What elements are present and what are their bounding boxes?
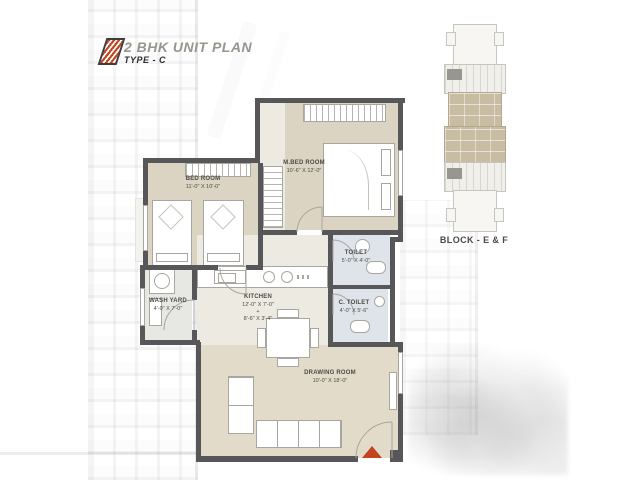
- wall: [258, 163, 263, 270]
- room-name: BED ROOM: [186, 176, 221, 184]
- dining-chair-icon: [277, 309, 299, 318]
- washing-machine-drum: [154, 273, 170, 289]
- floor-plan-page: 2 BHK UNIT PLAN TYPE - C BLOCK - E & F: [0, 0, 640, 480]
- key-plan-highlight-unit-1: [448, 92, 502, 128]
- room-dims-plus: +: [242, 309, 274, 316]
- room-dims: 5'-0" X 4'-0": [342, 258, 371, 265]
- room-name: DRAWING ROOM: [304, 370, 356, 378]
- key-plan-stair-lower: [447, 168, 462, 179]
- window-icon: [398, 150, 403, 196]
- armchair-icon: [228, 376, 254, 434]
- room-label-c-toilet: C. TOILET 4'-0" X 5'-6": [339, 300, 370, 315]
- room-label-toilet: TOILET 5'-0" X 4'-0": [342, 250, 371, 265]
- wall: [255, 98, 260, 163]
- window-icon: [143, 205, 148, 251]
- wall: [322, 230, 403, 235]
- hob-burner-icon: [281, 271, 293, 283]
- room-dims-2: 8'-6" X 3'-4": [242, 316, 274, 323]
- tv-unit-icon: [389, 372, 397, 410]
- wall: [196, 456, 358, 462]
- wall: [390, 237, 395, 347]
- window-icon: [140, 288, 145, 326]
- dining-chair-icon: [277, 358, 299, 367]
- hob-knobs: [297, 275, 311, 279]
- room-label-drawing-room: DRAWING ROOM 10'-0" X 18'-0": [304, 370, 356, 385]
- room-name: C. TOILET: [339, 300, 370, 308]
- wall: [333, 285, 390, 289]
- dining-chair-icon: [257, 328, 266, 348]
- sofa-icon: [256, 420, 342, 448]
- room-dims: 4'-0" X 5'-6": [339, 308, 370, 315]
- hob-burner-icon: [263, 271, 275, 283]
- wall: [390, 450, 403, 462]
- wall: [260, 230, 297, 235]
- window-icon: [398, 352, 403, 394]
- room-dims: 11'-0" X 10'-0": [186, 184, 221, 191]
- background-trees: [408, 345, 568, 475]
- entrance-arrow-icon: [362, 446, 382, 458]
- wall: [192, 330, 197, 345]
- room-label-kitchen: KITCHEN 12'-0" X 7'-0" + 8'-6" X 3'-4": [242, 294, 274, 323]
- dining-table-icon: [266, 318, 310, 358]
- key-plan: BLOCK - E & F: [436, 22, 512, 237]
- wall: [328, 342, 403, 347]
- pillow-icon: [381, 183, 391, 210]
- page-subtitle: TYPE - C: [124, 55, 166, 65]
- wc-icon: [350, 320, 370, 333]
- key-plan-top-block: [453, 24, 497, 66]
- wall: [192, 265, 197, 300]
- background-ground-line: [0, 452, 200, 455]
- room-label-wash-yard: WASH YARD 4'-0" X 7'-0": [149, 298, 187, 313]
- key-plan-top-tab-left: [446, 32, 456, 46]
- room-dims: 4'-0" X 7'-0": [149, 306, 187, 313]
- wall: [140, 340, 200, 345]
- room-dims: 12'-0" X 7'-0": [242, 302, 274, 309]
- wardrobe-icon: [185, 163, 251, 177]
- room-name: TOILET: [342, 250, 371, 258]
- sink-basin: [218, 273, 236, 283]
- wardrobe-column-icon: [263, 166, 283, 228]
- room-dims: 10'-6" X 12'-0": [283, 168, 325, 175]
- room-name: WASH YARD: [149, 298, 187, 306]
- dining-chair-icon: [310, 328, 319, 348]
- room-dims: 10'-0" X 18'-0": [304, 378, 356, 385]
- key-plan-highlight-unit-2: [444, 126, 506, 164]
- pillow-icon: [207, 253, 240, 262]
- wall: [143, 158, 260, 163]
- key-plan-bottom-tab-right: [494, 208, 504, 222]
- page-title: 2 BHK UNIT PLAN: [124, 39, 252, 55]
- key-plan-stair-upper: [447, 69, 462, 80]
- wall: [196, 342, 201, 462]
- room-name: KITCHEN: [242, 294, 274, 302]
- wall: [143, 265, 218, 270]
- key-plan-bottom-block: [453, 190, 497, 232]
- key-plan-bottom-tab-left: [446, 208, 456, 222]
- wall: [255, 98, 405, 103]
- key-plan-caption: BLOCK - E & F: [440, 235, 508, 245]
- key-plan-top-tab-right: [494, 32, 504, 46]
- pillow-icon: [156, 253, 188, 262]
- room-label-bedroom: BED ROOM 11'-0" X 10'-0": [186, 176, 221, 191]
- room-label-master-bedroom: M.BED ROOM 10'-6" X 12'-0": [283, 160, 325, 175]
- room-name: M.BED ROOM: [283, 160, 325, 168]
- wash-basin-icon: [374, 296, 385, 307]
- pillow-icon: [381, 149, 391, 176]
- wardrobe-icon: [303, 104, 386, 122]
